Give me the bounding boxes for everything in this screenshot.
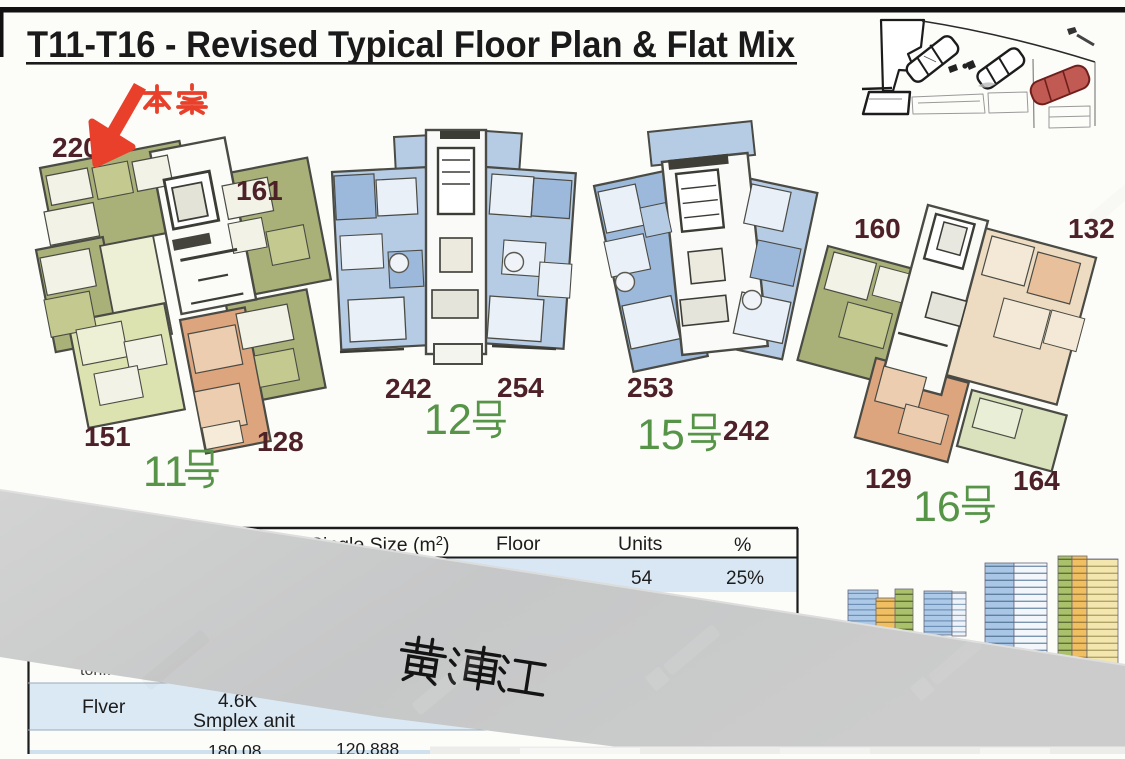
svg-text:151: 151 [84, 421, 131, 452]
svg-text:%: % [734, 534, 751, 556]
svg-text:161: 161 [236, 175, 283, 206]
svg-text:12: 12 [424, 396, 472, 444]
svg-text:16: 16 [913, 483, 961, 531]
svg-text:Flver: Flver [82, 696, 126, 718]
svg-text:T11-T16 - Revised Typical Floo: T11-T16 - Revised Typical Floor Plan & F… [27, 24, 795, 65]
svg-text:242: 242 [723, 415, 770, 446]
svg-text:129: 129 [865, 463, 912, 494]
svg-text:54: 54 [631, 568, 653, 589]
svg-text:Units: Units [618, 533, 663, 555]
svg-text:Smplex anit: Smplex anit [193, 710, 295, 732]
svg-text:120.888: 120.888 [336, 739, 399, 754]
svg-text:128: 128 [257, 426, 304, 457]
svg-text:253: 253 [627, 372, 674, 403]
svg-text:160: 160 [854, 213, 901, 244]
svg-text:Floor: Floor [496, 533, 541, 555]
svg-text:254: 254 [497, 372, 544, 403]
svg-text:25%: 25% [726, 568, 764, 589]
svg-text:164: 164 [1013, 465, 1060, 496]
svg-text:11: 11 [143, 448, 188, 496]
svg-text:180.08: 180.08 [208, 741, 262, 754]
svg-text:15: 15 [637, 411, 685, 459]
